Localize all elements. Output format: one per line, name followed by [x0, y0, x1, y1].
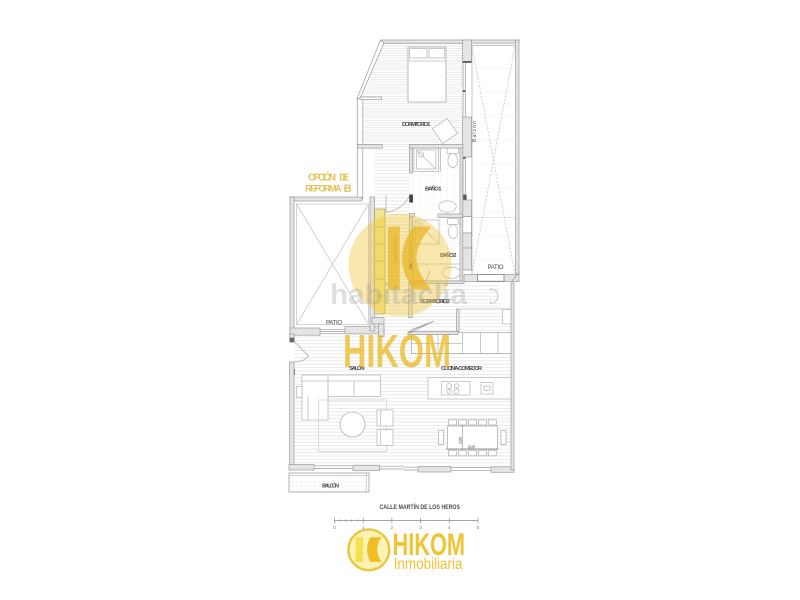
svg-text:Inmobiliaria: Inmobiliaria: [394, 556, 463, 573]
svg-text:Balcón: Balcón: [472, 121, 478, 142]
svg-text:BALCÓN: BALCÓN: [322, 482, 339, 490]
svg-text:5: 5: [477, 525, 480, 530]
svg-text:BAÑO 1: BAÑO 1: [425, 186, 442, 193]
svg-text:1.50: 1.50: [458, 437, 462, 444]
svg-text:0: 0: [333, 525, 336, 530]
svg-text:OPCIÓN: OPCIÓN: [308, 171, 336, 184]
svg-text:HIKOM: HIKOM: [343, 325, 451, 377]
svg-text:CALLE MARTÍN DE LOS HEROS: CALLE MARTÍN DE LOS HEROS: [380, 502, 461, 511]
svg-text:B: B: [344, 183, 352, 195]
svg-text:PATIO: PATIO: [326, 321, 342, 327]
svg-text:REFORMA: REFORMA: [305, 184, 342, 194]
svg-text:DORMITORIO 1: DORMITORIO 1: [402, 122, 431, 128]
svg-text:PATIO: PATIO: [488, 265, 504, 271]
svg-text:2.40: 2.40: [468, 445, 475, 449]
svg-text:habitaclia: habitaclia: [330, 279, 468, 311]
